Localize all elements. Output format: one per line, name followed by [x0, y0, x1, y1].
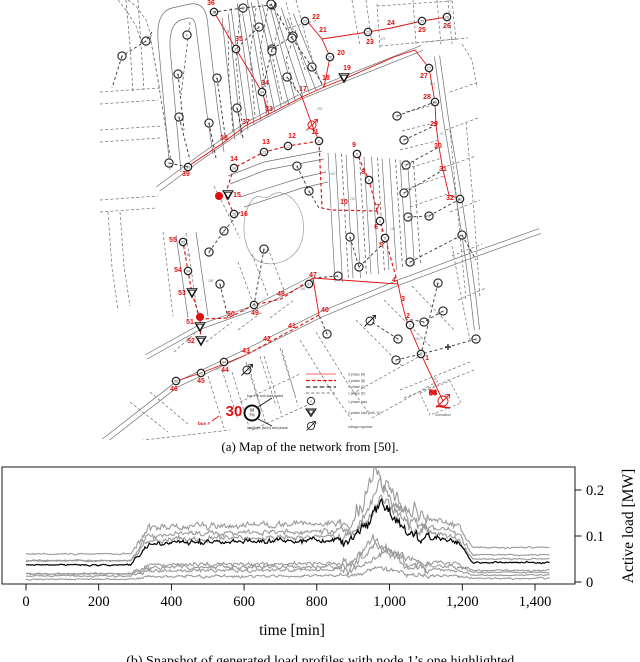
svg-text:86': 86'	[222, 27, 227, 31]
svg-text:44: 44	[222, 360, 226, 364]
svg-text:25: 25	[418, 27, 426, 34]
svg-text:8: 8	[361, 169, 365, 176]
svg-text:25: 25	[420, 19, 424, 23]
svg-text:n: n	[396, 114, 398, 118]
svg-text:52: 52	[187, 338, 195, 345]
svg-text:110': 110'	[215, 367, 221, 371]
svg-text:287': 287'	[238, 127, 244, 131]
svg-text:31: 31	[439, 166, 447, 173]
svg-text:3-phase (B): 3-phase (B)	[348, 379, 365, 383]
svg-text:5: 5	[384, 236, 386, 240]
svg-text:n: n	[405, 163, 407, 167]
svg-text:38: 38	[220, 135, 228, 142]
svg-text:479': 479'	[380, 37, 386, 41]
svg-text:24: 24	[387, 20, 395, 27]
svg-text:22: 22	[303, 19, 307, 23]
svg-text:13: 13	[262, 139, 270, 146]
svg-text:9: 9	[356, 152, 358, 156]
svg-text:16: 16	[240, 211, 248, 218]
svg-text:1,000: 1,000	[373, 594, 406, 610]
svg-text:600: 600	[233, 594, 255, 610]
svg-text:37: 37	[242, 119, 250, 126]
svg-text:23: 23	[366, 39, 374, 46]
svg-text:15: 15	[233, 192, 241, 199]
svg-text:48: 48	[277, 291, 285, 298]
svg-text:286': 286'	[208, 279, 214, 283]
svg-text:voltage regulator: voltage regulator	[348, 425, 373, 429]
svg-text:20: 20	[337, 50, 345, 57]
svg-text:26: 26	[445, 15, 449, 19]
svg-text:1,200: 1,200	[446, 594, 479, 610]
svg-text:28: 28	[423, 94, 431, 101]
svg-text:4: 4	[392, 277, 396, 284]
svg-text:560': 560'	[432, 377, 438, 381]
svg-text:36: 36	[207, 0, 215, 7]
svg-text:11: 11	[311, 129, 318, 136]
svg-text:251': 251'	[350, 197, 356, 201]
svg-text:43: 43	[242, 348, 250, 355]
svg-text:3-phase load [kVA, %]: 3-phase load [kVA, %]	[348, 411, 380, 415]
svg-text:0: 0	[22, 594, 29, 610]
svg-text:22: 22	[312, 14, 320, 21]
svg-text:19: 19	[343, 65, 351, 72]
svg-text:528': 528'	[240, 309, 246, 313]
svg-text:7: 7	[376, 204, 380, 211]
svg-text:502': 502'	[248, 67, 254, 71]
svg-text:n: n	[403, 138, 405, 142]
svg-text:n: n	[186, 33, 188, 37]
svg-text:n: n	[395, 358, 397, 362]
svg-text:n: n	[409, 260, 411, 264]
svg-text:400': 400'	[330, 172, 336, 176]
svg-text:39: 39	[182, 171, 190, 178]
svg-text:46: 46	[170, 386, 178, 393]
svg-text:146': 146'	[390, 227, 396, 231]
svg-text:41: 41	[288, 323, 296, 330]
svg-text:47: 47	[307, 282, 311, 286]
svg-text:14: 14	[230, 156, 238, 163]
svg-text:26: 26	[443, 23, 451, 30]
svg-text:46: 46	[174, 379, 178, 383]
svg-text:55: 55	[169, 237, 177, 244]
svg-text:1: 1	[425, 355, 429, 362]
svg-text:1-phase load: 1-phase load	[348, 400, 367, 404]
svg-text:n: n	[403, 191, 405, 195]
svg-text:1,400: 1,400	[519, 594, 552, 610]
svg-text:92': 92'	[440, 132, 445, 136]
svg-text:6: 6	[379, 219, 381, 223]
svg-text:56: 56	[429, 390, 437, 397]
svg-text:39: 39	[186, 165, 190, 169]
svg-text:35: 35	[235, 36, 243, 43]
svg-text:27: 27	[420, 73, 428, 80]
svg-text:54: 54	[186, 269, 190, 273]
svg-text:n: n	[428, 214, 430, 218]
svg-text:2-phase (C): 2-phase (C)	[348, 385, 365, 389]
svg-text:45: 45	[199, 371, 203, 375]
svg-text:33: 33	[265, 106, 273, 113]
svg-text:36: 36	[212, 10, 216, 14]
svg-text:7%: 7%	[249, 413, 255, 418]
svg-text:load/type [a/b/c] and phase: load/type [a/b/c] and phase	[247, 426, 288, 430]
svg-text:55: 55	[181, 240, 185, 244]
svg-text:20: 20	[328, 55, 332, 59]
svg-text:0.1: 0.1	[586, 529, 604, 545]
svg-text:173': 173'	[408, 21, 414, 25]
svg-text:bus # in red=load tested: bus # in red=load tested	[247, 394, 283, 398]
svg-text:9: 9	[352, 142, 356, 149]
svg-text:861': 861'	[415, 337, 421, 341]
svg-text:6: 6	[374, 224, 378, 231]
svg-text:51: 51	[186, 319, 194, 326]
svg-text:200: 200	[88, 594, 110, 610]
svg-text:12: 12	[286, 144, 290, 148]
svg-text:n: n	[310, 399, 312, 403]
svg-text:0: 0	[586, 575, 593, 591]
svg-text:8: 8	[368, 178, 370, 182]
svg-text:21: 21	[319, 27, 327, 34]
svg-text:292': 292'	[317, 107, 323, 111]
svg-text:1-phase (D): 1-phase (D)	[348, 391, 365, 395]
svg-text:50: 50	[227, 311, 235, 318]
svg-text:Active load [MW]: Active load [MW]	[620, 469, 637, 584]
svg-text:183': 183'	[185, 253, 191, 257]
svg-text:10: 10	[340, 199, 348, 206]
svg-text:Substation: Substation	[435, 413, 451, 417]
svg-text:400: 400	[161, 594, 183, 610]
svg-text:34: 34	[260, 90, 264, 94]
svg-text:0.2: 0.2	[586, 483, 604, 499]
svg-text:310': 310'	[283, 101, 289, 105]
svg-text:5: 5	[379, 242, 383, 249]
svg-text:14: 14	[232, 166, 236, 170]
svg-text:42: 42	[263, 336, 271, 343]
svg-text:12: 12	[288, 133, 296, 140]
svg-text:30: 30	[226, 403, 243, 420]
svg-text:53: 53	[178, 290, 186, 297]
svg-text:2: 2	[409, 323, 411, 327]
svg-text:54: 54	[174, 267, 182, 274]
svg-text:40: 40	[321, 307, 329, 314]
svg-text:time [min]: time [min]	[259, 622, 325, 639]
svg-text:800: 800	[306, 594, 328, 610]
svg-text:44: 44	[221, 367, 229, 374]
svg-text:23: 23	[366, 30, 370, 34]
svg-text:3: 3	[401, 296, 405, 303]
svg-text:17: 17	[299, 86, 307, 93]
svg-text:27: 27	[427, 66, 431, 70]
svg-text:32: 32	[446, 195, 454, 202]
svg-text:173': 173'	[280, 333, 286, 337]
svg-text:bus #: bus #	[198, 421, 210, 426]
svg-text:49: 49	[251, 310, 259, 317]
svg-text:366': 366'	[300, 287, 306, 291]
svg-text:3-phase (A): 3-phase (A)	[348, 373, 365, 377]
svg-text:18: 18	[322, 75, 330, 82]
svg-text:11: 11	[317, 139, 321, 143]
svg-text:861': 861'	[430, 82, 436, 86]
svg-text:34: 34	[261, 80, 269, 87]
svg-text:16: 16	[232, 212, 236, 216]
svg-text:45: 45	[197, 378, 205, 385]
svg-text:13: 13	[262, 150, 266, 154]
svg-text:n: n	[397, 337, 399, 341]
